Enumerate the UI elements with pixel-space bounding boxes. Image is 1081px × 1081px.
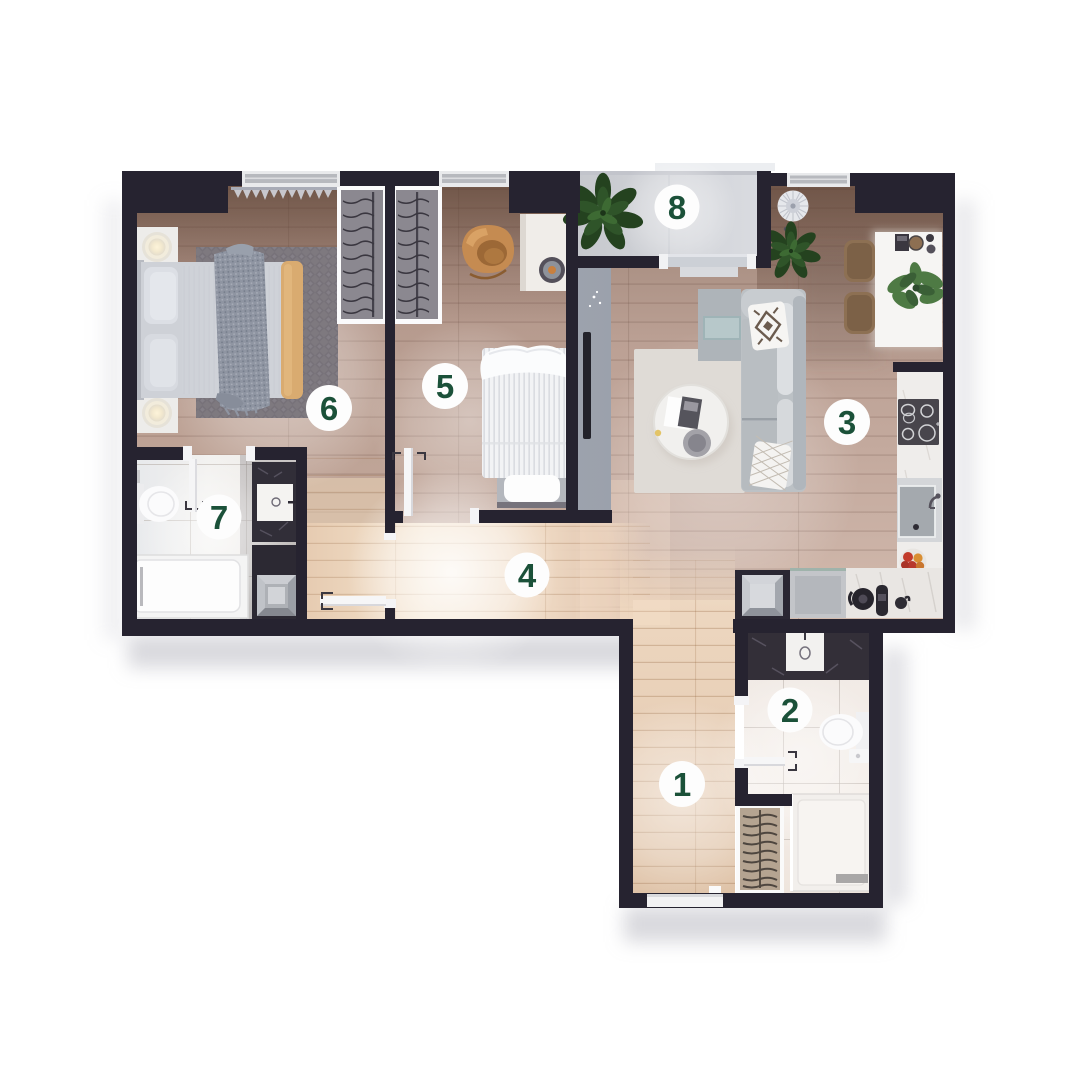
svg-text:1: 1	[673, 766, 691, 803]
svg-text:6: 6	[320, 390, 338, 427]
svg-text:2: 2	[781, 692, 799, 729]
svg-text:5: 5	[436, 368, 454, 405]
svg-text:7: 7	[210, 499, 228, 536]
svg-text:4: 4	[518, 557, 537, 594]
svg-text:8: 8	[668, 189, 686, 226]
svg-text:3: 3	[838, 404, 856, 441]
